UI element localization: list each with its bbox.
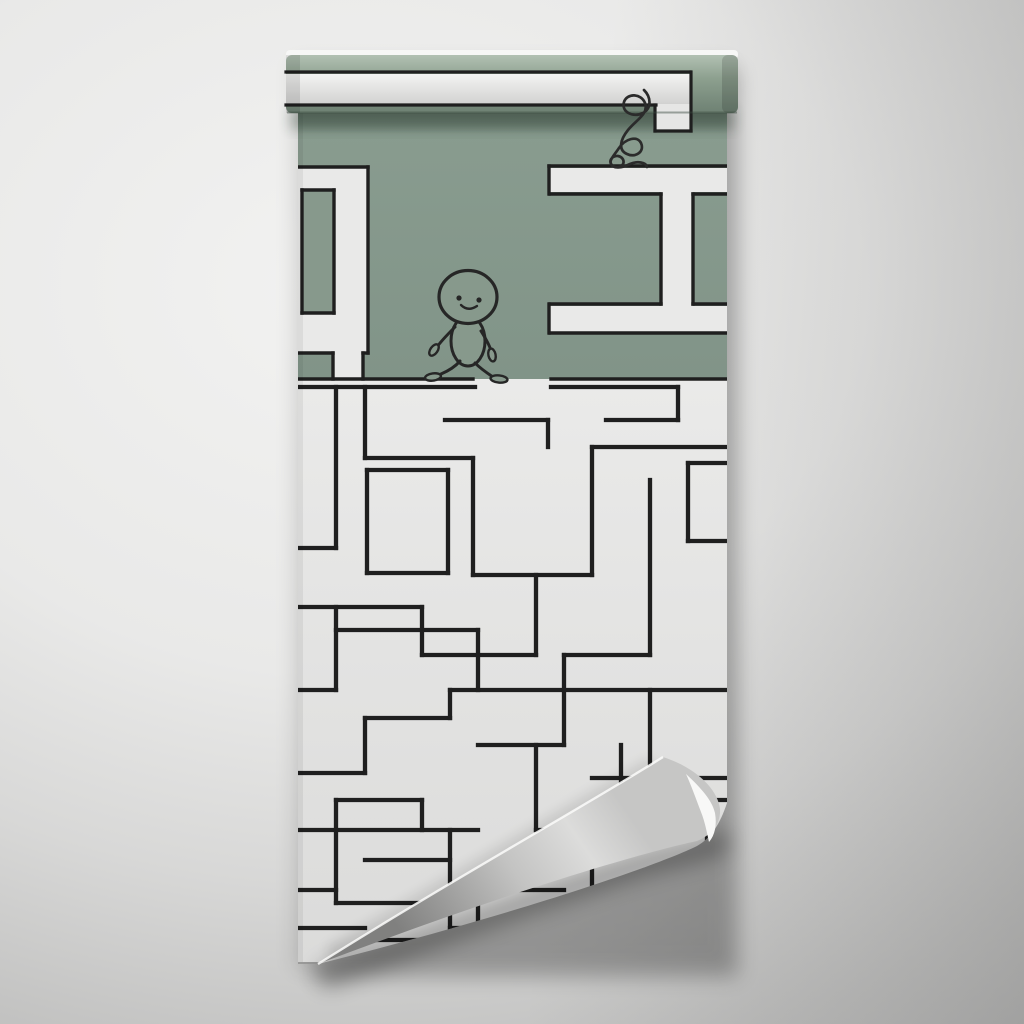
roll-maze-band (286, 74, 690, 104)
scene-background (0, 0, 1024, 1024)
wallpaper-mockup-image (0, 0, 1024, 1024)
maze-green-hole (302, 190, 334, 313)
roll-maze-stub (656, 104, 690, 131)
character-head (439, 271, 497, 324)
maze-path-rect (550, 168, 727, 192)
roll-left-cap-shade (286, 55, 300, 113)
character-eye (476, 297, 481, 302)
character-eye (456, 295, 461, 300)
maze-path-rect (550, 306, 727, 332)
character-foot (490, 375, 508, 384)
sheet-left-edge-shade (298, 55, 303, 964)
roll-right-cap-shade (722, 55, 738, 113)
maze-path-rect (333, 353, 363, 380)
maze-path-rect (661, 192, 693, 306)
